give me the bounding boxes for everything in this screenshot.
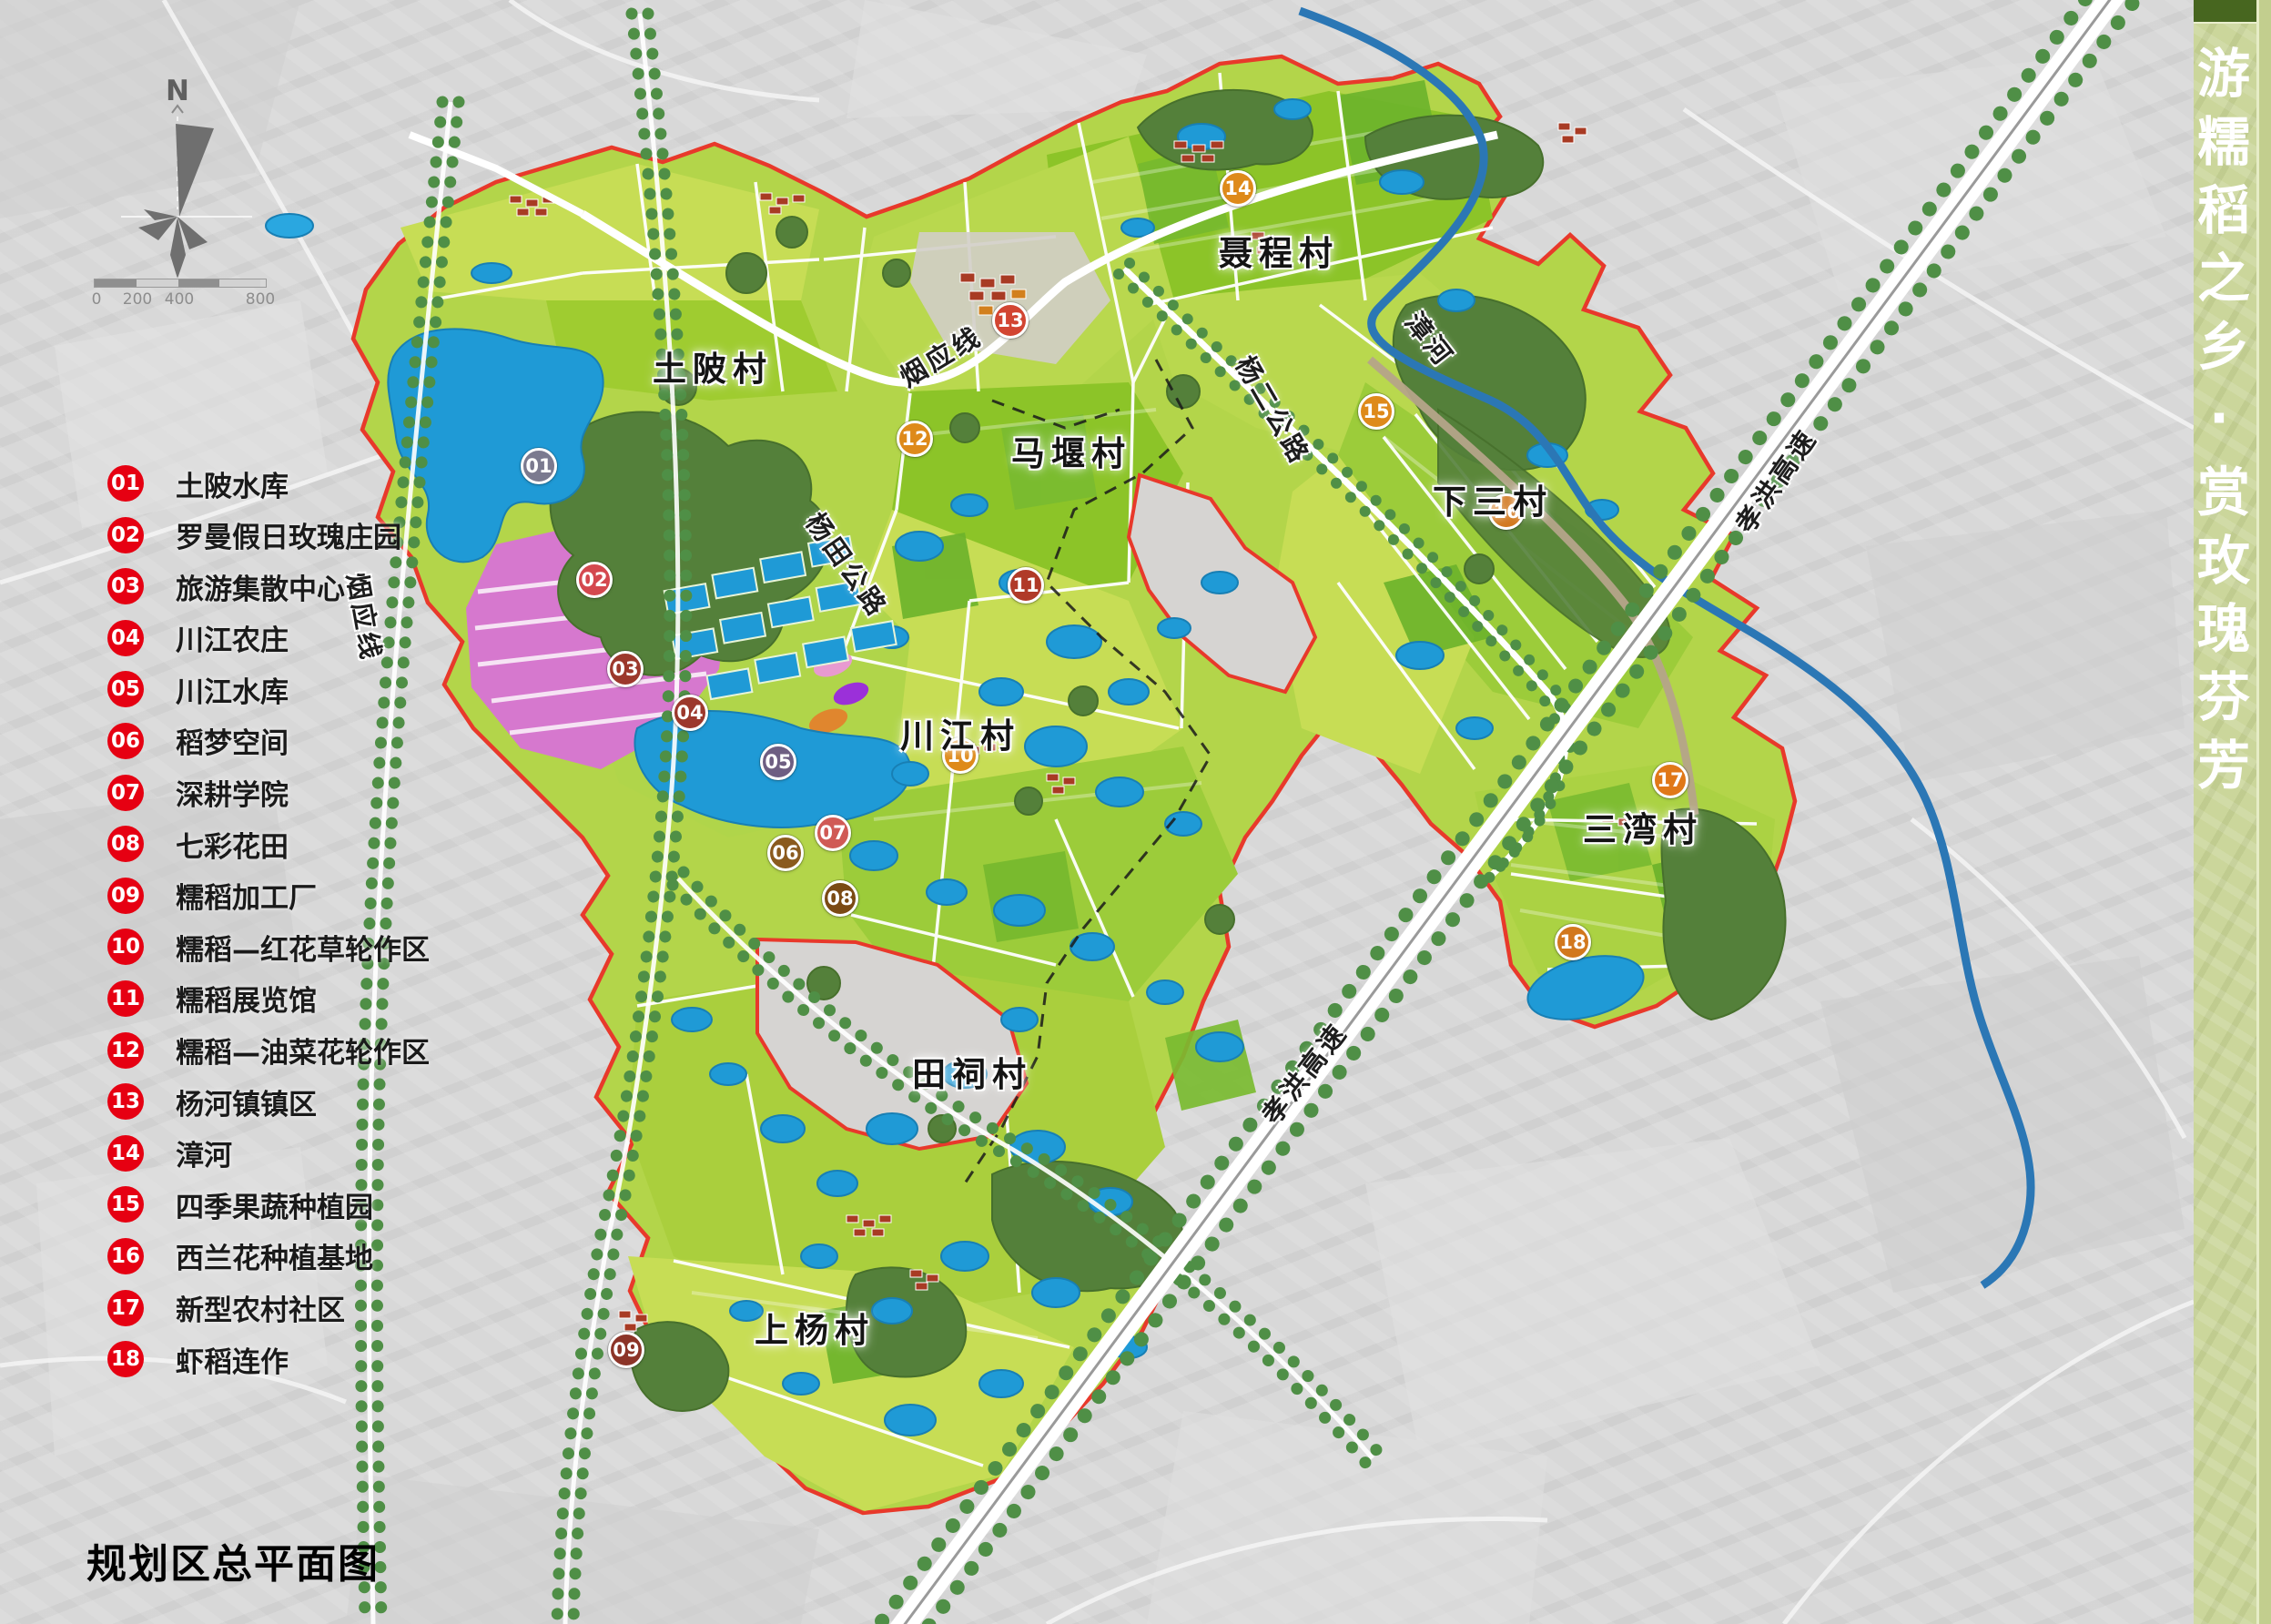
legend-number-badge: 02 (107, 517, 144, 553)
legend-item-label: 糯稻—红花草轮作区 (176, 927, 430, 968)
legend-number-badge: 18 (107, 1341, 144, 1377)
legend-item: 03 旅游集散中心 (107, 568, 430, 604)
legend-item-label: 虾稻连作 (176, 1339, 289, 1380)
legend-item: 15 四季果蔬种植园 (107, 1186, 430, 1223)
scale-tick-400: 400 (165, 290, 194, 309)
legend-item: 13 杨河镇镇区 (107, 1083, 430, 1120)
legend-number-badge: 13 (107, 1083, 144, 1120)
legend-item: 01 土陂水库 (107, 465, 430, 502)
legend-number-badge: 11 (107, 980, 144, 1017)
legend-item-label: 川江水库 (176, 669, 289, 710)
legend-number-badge: 10 (107, 929, 144, 965)
legend-item-label: 旅游集散中心 (176, 566, 345, 607)
plan-title: 规划区总平面图 (86, 1531, 380, 1589)
legend-item-label: 稻梦空间 (176, 720, 289, 761)
legend-number-badge: 15 (107, 1186, 144, 1223)
legend-item: 09 糯稻加工厂 (107, 878, 430, 914)
legend-item-label: 漳河 (176, 1132, 232, 1173)
legend-item: 12 糯稻—油菜花轮作区 (107, 1032, 430, 1069)
legend-item: 08 七彩花田 (107, 826, 430, 862)
legend-item-label: 川江农庄 (176, 617, 289, 658)
legend-item: 05 川江水库 (107, 671, 430, 707)
legend-number-badge: 16 (107, 1238, 144, 1274)
side-banner-right-pane (2259, 0, 2271, 1624)
scale-bar-segments (94, 279, 267, 288)
legend-item-label: 罗曼假日玫瑰庄园 (176, 514, 401, 555)
side-banner-title: 游糯稻之乡·赏玫瑰芬芳 (2190, 46, 2248, 806)
legend-item: 10 糯稻—红花草轮作区 (107, 929, 430, 965)
legend-item-label: 四季果蔬种植园 (176, 1184, 373, 1225)
legend-item: 11 糯稻展览馆 (107, 980, 430, 1017)
legend-item: 16 西兰花种植基地 (107, 1238, 430, 1274)
legend-number-badge: 14 (107, 1135, 144, 1172)
legend-number-badge: 04 (107, 620, 144, 656)
scale-tick-800: 800 (246, 290, 275, 309)
legend-item: 06 稻梦空间 (107, 723, 430, 759)
legend-item-label: 深耕学院 (176, 772, 289, 813)
side-banner: 游糯稻之乡·赏玫瑰芬芳 (2194, 0, 2271, 1624)
legend-number-badge: 06 (107, 723, 144, 759)
legend-item-label: 杨河镇镇区 (176, 1081, 317, 1122)
legend-item: 18 虾稻连作 (107, 1341, 430, 1377)
compass-rose-graphic (100, 55, 264, 300)
legend-item-label: 糯稻加工厂 (176, 875, 317, 916)
legend-number-badge: 08 (107, 826, 144, 862)
legend: 01 土陂水库 02 罗曼假日玫瑰庄园 03 旅游集散中心 04 川江农庄 05… (107, 465, 430, 1393)
scale-tick-200: 200 (123, 290, 152, 309)
legend-item: 02 罗曼假日玫瑰庄园 (107, 517, 430, 553)
scale-tick-0: 0 (92, 290, 102, 309)
plan-map-stage: N 0 200 400 800 01 土陂水库 02 罗曼假日玫瑰庄园 03 旅… (0, 0, 2271, 1624)
legend-item-label: 七彩花田 (176, 824, 289, 865)
legend-item-label: 糯稻展览馆 (176, 978, 317, 1019)
scale-bar: 0 200 400 800 (94, 279, 267, 288)
legend-number-badge: 01 (107, 465, 144, 502)
legend-item-label: 糯稻—油菜花轮作区 (176, 1030, 430, 1071)
legend-number-badge: 09 (107, 878, 144, 914)
legend-item-label: 新型农村社区 (176, 1287, 345, 1328)
side-banner-divider (2256, 0, 2259, 1624)
legend-item: 04 川江农庄 (107, 620, 430, 656)
legend-item-label: 土陂水库 (176, 463, 289, 504)
legend-number-badge: 03 (107, 568, 144, 604)
legend-number-badge: 05 (107, 671, 144, 707)
legend-number-badge: 07 (107, 775, 144, 811)
legend-item: 17 新型农村社区 (107, 1290, 430, 1326)
legend-item-label: 西兰花种植基地 (176, 1235, 373, 1276)
legend-number-badge: 17 (107, 1290, 144, 1326)
compass-rose: N (100, 55, 264, 300)
legend-number-badge: 12 (107, 1032, 144, 1069)
legend-item: 07 深耕学院 (107, 775, 430, 811)
legend-item: 14 漳河 (107, 1135, 430, 1172)
